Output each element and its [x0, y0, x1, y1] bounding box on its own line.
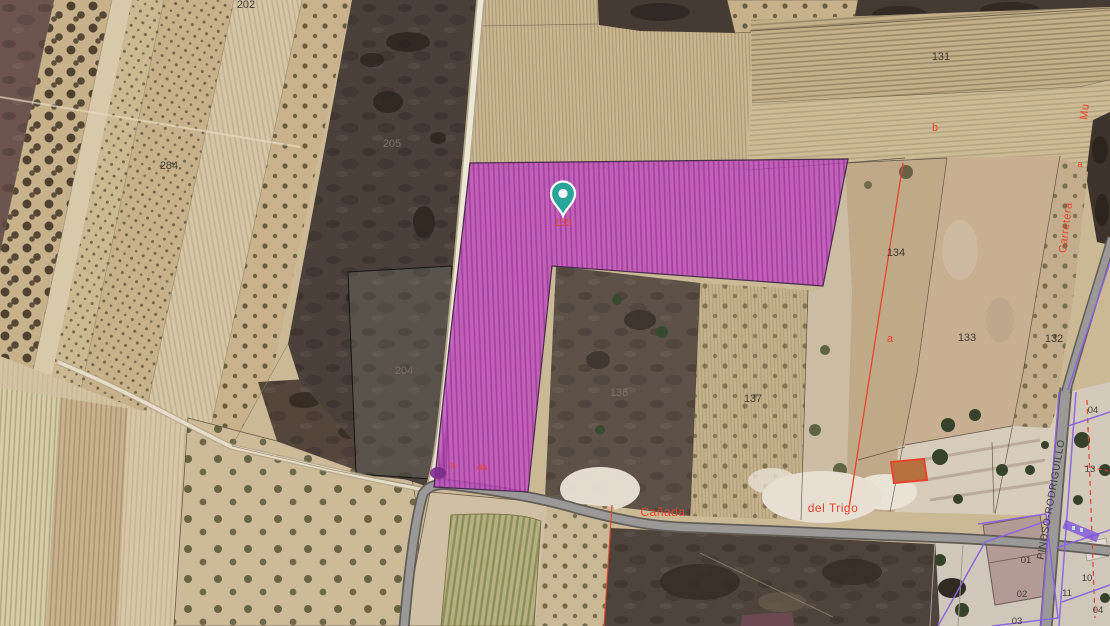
urban-number-10: 10 [1082, 573, 1093, 584]
parcel-number-134: 134 [887, 247, 905, 259]
parcel-number-202: 202 [237, 0, 255, 11]
urban-number-11: 11 [1062, 588, 1072, 599]
parcel-number-284: 284 [160, 160, 178, 172]
urban-number-02: 02 [1017, 589, 1028, 600]
scrub-below-road [604, 528, 952, 626]
fields-bottom-left [0, 388, 188, 626]
red-letter-a-134: a [887, 333, 894, 345]
parcel-number-136: 136 [610, 387, 628, 399]
road-label-canada: Cañada [640, 505, 685, 519]
pin-parcel-number-135: 135 [554, 217, 572, 229]
parcel-number-133: 133 [958, 332, 976, 344]
outlined-building [891, 459, 927, 483]
street-band-glyph [1080, 528, 1083, 532]
parcel-number-204: 204 [395, 365, 413, 377]
satellite-map: 202 284 205 204 131 134 133 132 136 137 … [0, 0, 1110, 626]
parcel-number-205: 205 [383, 138, 401, 150]
parcel-number-131: 131 [932, 51, 950, 63]
parcel-number-132: 132 [1045, 333, 1063, 345]
red-letters-da-parcel: da [477, 462, 488, 473]
urban-number-04: 04 [1088, 405, 1099, 416]
urban-number-13: 13 [1085, 464, 1096, 475]
red-letter-b: b [932, 122, 938, 134]
street-band-glyph [1072, 526, 1075, 530]
road-label-mu: Mu [1078, 103, 1092, 121]
red-letter-a-parcel: a [450, 460, 456, 471]
urban-number-03: 03 [1012, 616, 1023, 626]
red-letter-a-right: a [1077, 159, 1083, 170]
road-label-del-trigo: del Trigo [808, 501, 859, 515]
urban-number-04b: 04 [1093, 605, 1104, 616]
parcel-number-137: 137 [744, 393, 762, 405]
parcel-dark-blotch [430, 467, 446, 479]
urban-number-01: 01 [1021, 555, 1032, 566]
satellite-map-viewport[interactable]: 202 284 205 204 131 134 133 132 136 137 … [0, 0, 1110, 626]
